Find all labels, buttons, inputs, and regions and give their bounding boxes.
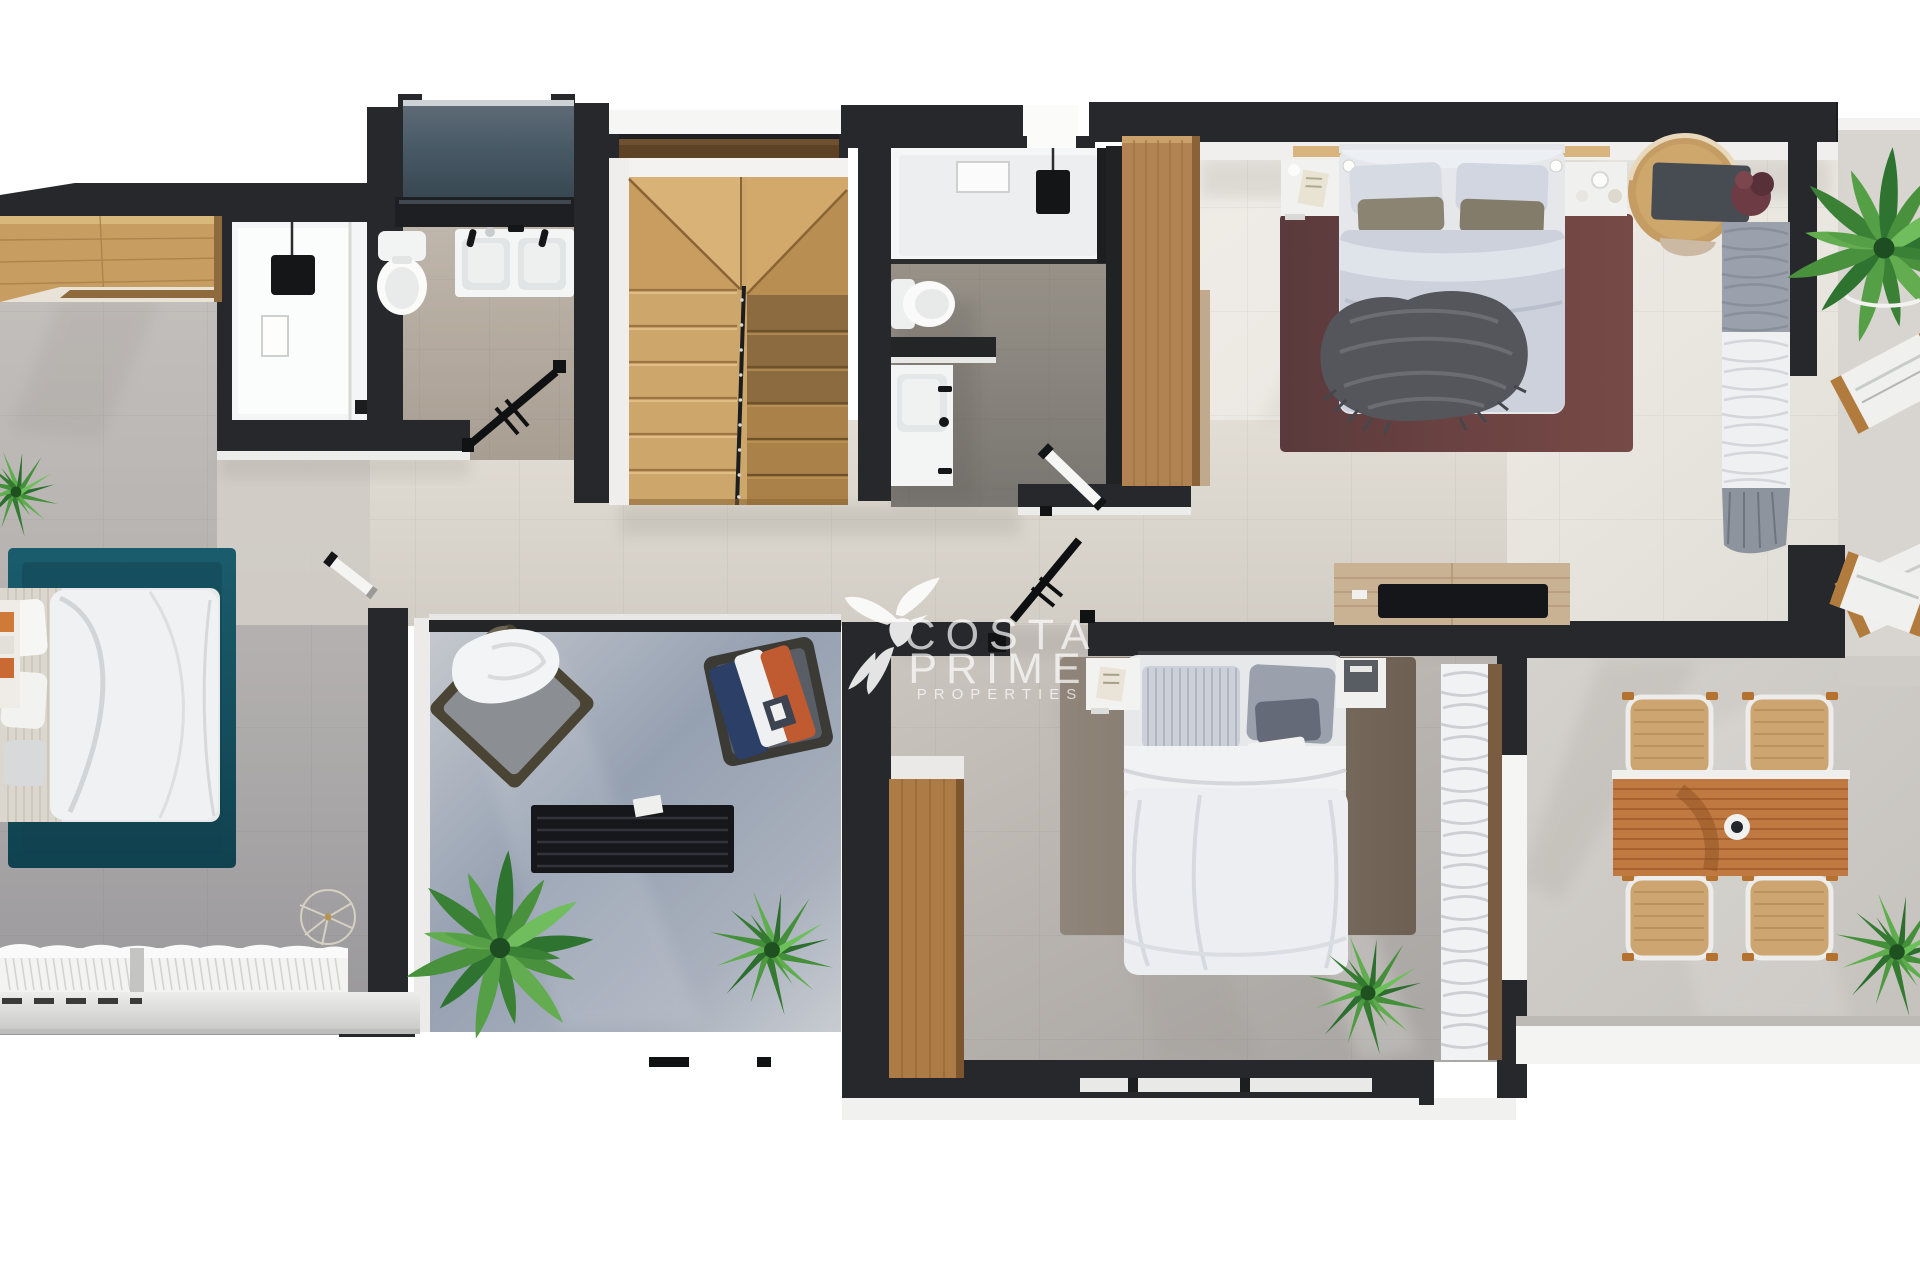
svg-text:PROPERTIES: PROPERTIES: [917, 686, 1083, 703]
